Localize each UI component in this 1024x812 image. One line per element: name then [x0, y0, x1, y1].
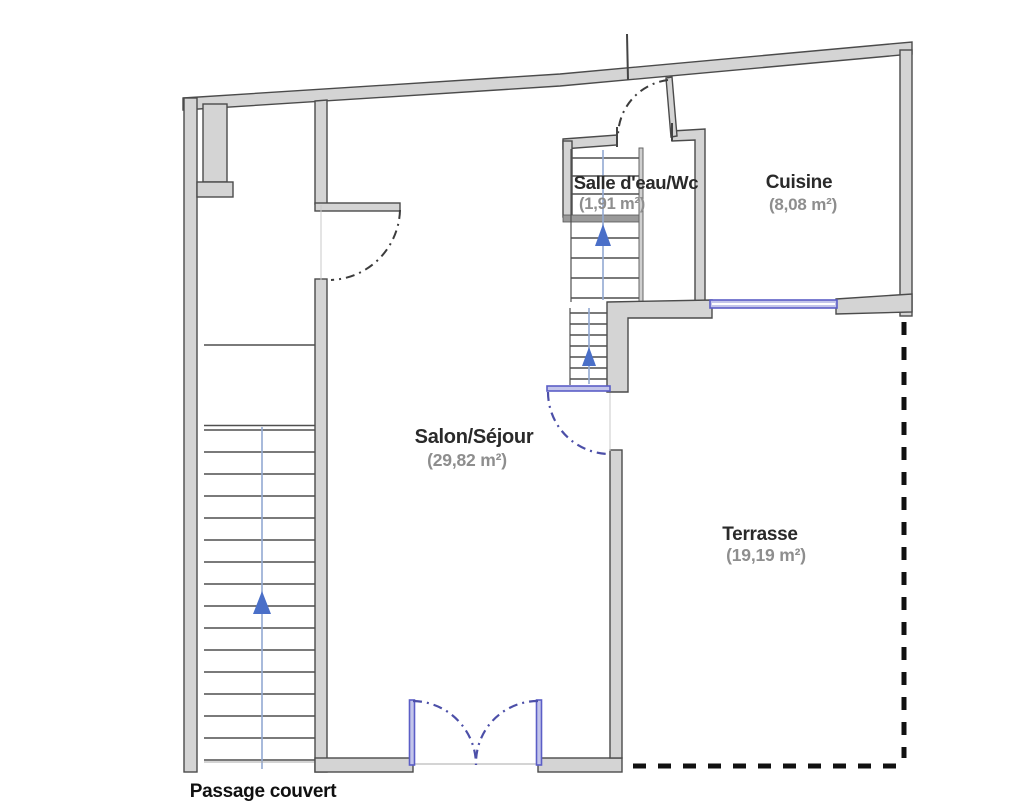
wall-joint-tick: [627, 34, 628, 80]
right-wall: [900, 50, 912, 316]
salon-bottom-wall-right: [538, 758, 622, 772]
cuisine-area: (8,08 m²): [769, 195, 837, 214]
outer-walls: [183, 34, 912, 772]
french-door-right-leaf: [537, 700, 542, 765]
entry-door-swing-arc: [618, 80, 668, 137]
cuisine-bottom-wall-right: [836, 294, 912, 314]
stairs-bottom-door: [547, 386, 610, 391]
salon-bottom-wall-left: [315, 758, 413, 772]
cuisine-label: Cuisine: [766, 172, 833, 193]
passage-couvert-zone: [204, 100, 400, 772]
terrasse-area: (19,19 m²): [726, 545, 806, 565]
corridor-door-swing-arc: [331, 210, 400, 280]
passage-couvert-label: Passage couvert: [190, 781, 337, 802]
salle-deau-right-wall: [672, 129, 705, 311]
cuisine-zone: [710, 294, 912, 314]
french-door-left-arc: [413, 701, 476, 765]
salon-right-wall: [610, 450, 622, 758]
french-door-left-leaf: [410, 700, 415, 765]
floor-plan-drawing: Salle d'eau/Wc (1,91 m²) Cuisine (8,08 m…: [0, 0, 1024, 812]
upper-stairs-up-arrow: [595, 224, 611, 246]
salle-deau-floor-edge: [563, 215, 641, 222]
stairs-bottom-door-arc: [548, 392, 610, 454]
stairs-cuisine-l-wall: [607, 300, 712, 392]
corridor-wall-lower: [315, 279, 327, 772]
left-wall: [184, 98, 197, 772]
pillar-step: [197, 182, 233, 197]
corridor-door-leaf: [315, 203, 400, 211]
salon-label: Salon/Séjour: [415, 426, 534, 448]
salle-deau-area: (1,91 m²): [579, 195, 645, 213]
french-door-right-arc: [476, 701, 538, 765]
floor-plan-page: Salle d'eau/Wc (1,91 m²) Cuisine (8,08 m…: [0, 0, 1024, 812]
salon-area: (29,82 m²): [427, 450, 507, 470]
corridor-wall-upper: [315, 100, 327, 204]
terrasse-label: Terrasse: [722, 524, 797, 545]
room-labels: Salle d'eau/Wc (1,91 m²) Cuisine (8,08 m…: [190, 172, 837, 802]
pillar: [203, 104, 227, 182]
left-staircase-steps: [204, 426, 315, 761]
salle-deau-label: Salle d'eau/Wc: [574, 172, 699, 193]
left-stairs-up-arrow: [253, 591, 271, 614]
salon-zone: [315, 392, 622, 772]
top-wall: [183, 42, 912, 110]
